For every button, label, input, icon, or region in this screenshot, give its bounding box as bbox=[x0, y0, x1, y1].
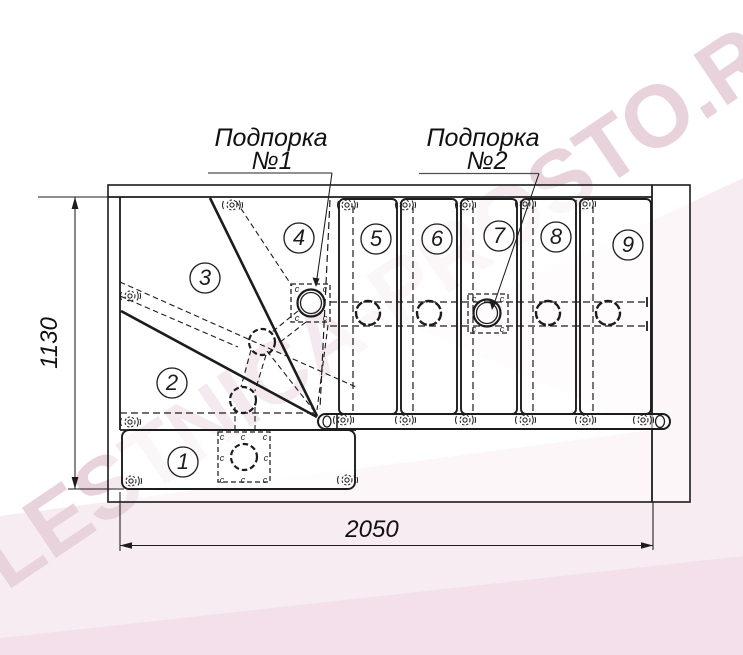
step-number-7: 7 bbox=[493, 223, 506, 248]
connector-mark: c bbox=[295, 313, 300, 323]
stringer-beam bbox=[318, 414, 670, 430]
step-1-board bbox=[122, 430, 355, 489]
connector-mark: c bbox=[500, 294, 505, 304]
dim-arrow-right bbox=[641, 542, 653, 549]
step-number-8: 8 bbox=[550, 224, 563, 249]
step-number-2: 2 bbox=[165, 370, 178, 395]
connector-mark: c bbox=[295, 284, 300, 294]
step-number-1: 1 bbox=[177, 449, 189, 474]
tread-9 bbox=[580, 199, 651, 414]
connector-mark: c bbox=[323, 313, 328, 323]
connector-mark: c bbox=[241, 475, 246, 485]
drawing-page: LESTNICA-PROSTO.RU bbox=[0, 0, 743, 655]
step-number-4: 4 bbox=[293, 225, 305, 250]
dimension-height-value: 1130 bbox=[36, 317, 63, 369]
step-number-5: 5 bbox=[370, 226, 383, 251]
connector-mark: c bbox=[220, 453, 225, 463]
step-number-9: 9 bbox=[622, 232, 634, 257]
connector-mark: c bbox=[323, 284, 328, 294]
step-number-3: 3 bbox=[199, 265, 212, 290]
connector-mark: c bbox=[263, 432, 268, 442]
connector-mark: c bbox=[263, 475, 268, 485]
dimension-width-value: 2050 bbox=[344, 516, 399, 543]
dim-arrow-up bbox=[72, 197, 79, 209]
connector-mark: c bbox=[241, 432, 246, 442]
dim-arrow-down bbox=[72, 477, 79, 489]
connector-mark: c bbox=[264, 453, 269, 463]
support-1-number: №1 bbox=[252, 147, 293, 175]
connector-mark: c bbox=[220, 475, 225, 485]
connector-mark: c bbox=[472, 324, 477, 334]
stair-plan-drawing: c c c c c c c c c c c c c c c c bbox=[0, 0, 743, 655]
step-number-6: 6 bbox=[431, 226, 444, 251]
connector-mark: c bbox=[500, 324, 505, 334]
connector-mark: c bbox=[220, 432, 225, 442]
support-2-number: №2 bbox=[467, 147, 508, 175]
dim-arrow-left bbox=[120, 542, 132, 549]
connector-mark: c bbox=[472, 294, 477, 304]
